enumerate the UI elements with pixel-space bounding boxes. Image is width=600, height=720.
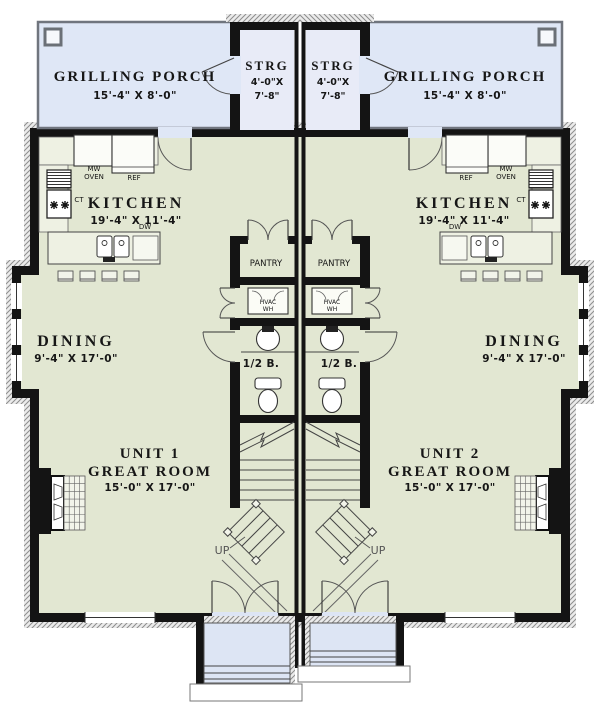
unit1-great-room-dims: 15'-0" X 17'-0" — [104, 482, 195, 494]
unit2-porch-dims: 15'-4" X 8'-0" — [423, 90, 507, 102]
unit1-porch-label: GRILLING PORCH — [54, 69, 217, 85]
unit1-hvac-label1: HVAC — [260, 299, 276, 306]
unit1-dw-label: DW — [139, 223, 151, 231]
unit1-mw-label1: MW — [88, 165, 101, 173]
unit2-hvac-label2: WH — [327, 306, 337, 313]
unit2-mw-label2: OVEN — [496, 173, 516, 181]
unit1-pantry-label: PANTRY — [250, 259, 283, 269]
unit1-step — [190, 684, 302, 701]
unit2-dw-label: DW — [449, 223, 461, 231]
unit2-dining-label: DINING — [485, 333, 563, 350]
unit2-mw-label1: MW — [500, 165, 513, 173]
unit1-half-bath-label: 1/2 B. — [243, 358, 280, 370]
unit2-kitchen-dims: 19'-4" X 11'-4" — [418, 215, 509, 227]
unit1-front-stoop — [190, 613, 302, 701]
unit2-storage-dims1: 4'-0"X — [317, 77, 350, 88]
unit2-up-label: UP — [371, 544, 386, 557]
unit1-storage-dims1: 4'-0"X — [251, 77, 284, 88]
unit1-great-room-line1: UNIT 1 — [120, 446, 181, 462]
unit2-kitchen-label: KITCHEN — [416, 195, 513, 212]
unit1-hvac-label2: WH — [263, 306, 273, 313]
unit1-ct-label: CT — [74, 196, 84, 204]
unit2-ct-label: CT — [516, 196, 526, 204]
unit1-up-label: UP — [215, 544, 230, 557]
floor-plan-drawing: GRILLING PORCH 15'-4" X 8'-0" STRG 4'-0"… — [0, 0, 600, 720]
unit1-kitchen-dims: 19'-4" X 11'-4" — [90, 215, 181, 227]
unit2-ref-label: REF — [459, 174, 472, 182]
unit1-storage-dims2: 7'-8" — [254, 91, 279, 102]
unit2-storage-dims2: 7'-8" — [320, 91, 345, 102]
unit2-great-room-line1: UNIT 2 — [420, 446, 481, 462]
unit1-storage-label: STRG — [245, 58, 288, 73]
unit2-hvac-label1: HVAC — [324, 299, 340, 306]
unit2-great-room-dims: 15'-0" X 17'-0" — [404, 482, 495, 494]
unit1-great-room-line2: GREAT ROOM — [88, 464, 212, 480]
unit1-dining-label: DINING — [37, 333, 115, 350]
unit2-storage-label: STRG — [311, 58, 354, 73]
unit1-mw-label2: OVEN — [84, 173, 104, 181]
unit2-porch-label: GRILLING PORCH — [384, 69, 547, 85]
unit1-porch-dims: 15'-4" X 8'-0" — [93, 90, 177, 102]
unit2-step — [298, 666, 410, 682]
unit1-kitchen-label: KITCHEN — [88, 195, 185, 212]
unit2-front-stoop — [298, 613, 410, 682]
unit2-great-room-line2: GREAT ROOM — [388, 464, 512, 480]
unit2-dining-dims: 9'-4" X 17'-0" — [482, 353, 566, 365]
unit2-half-bath-label: 1/2 B. — [321, 358, 358, 370]
duplex-floor-plan: GRILLING PORCH 15'-4" X 8'-0" STRG 4'-0"… — [0, 0, 600, 720]
unit1-ref-label: REF — [127, 174, 140, 182]
unit1-dining-dims: 9'-4" X 17'-0" — [34, 353, 118, 365]
unit2-pantry-label: PANTRY — [318, 259, 351, 269]
